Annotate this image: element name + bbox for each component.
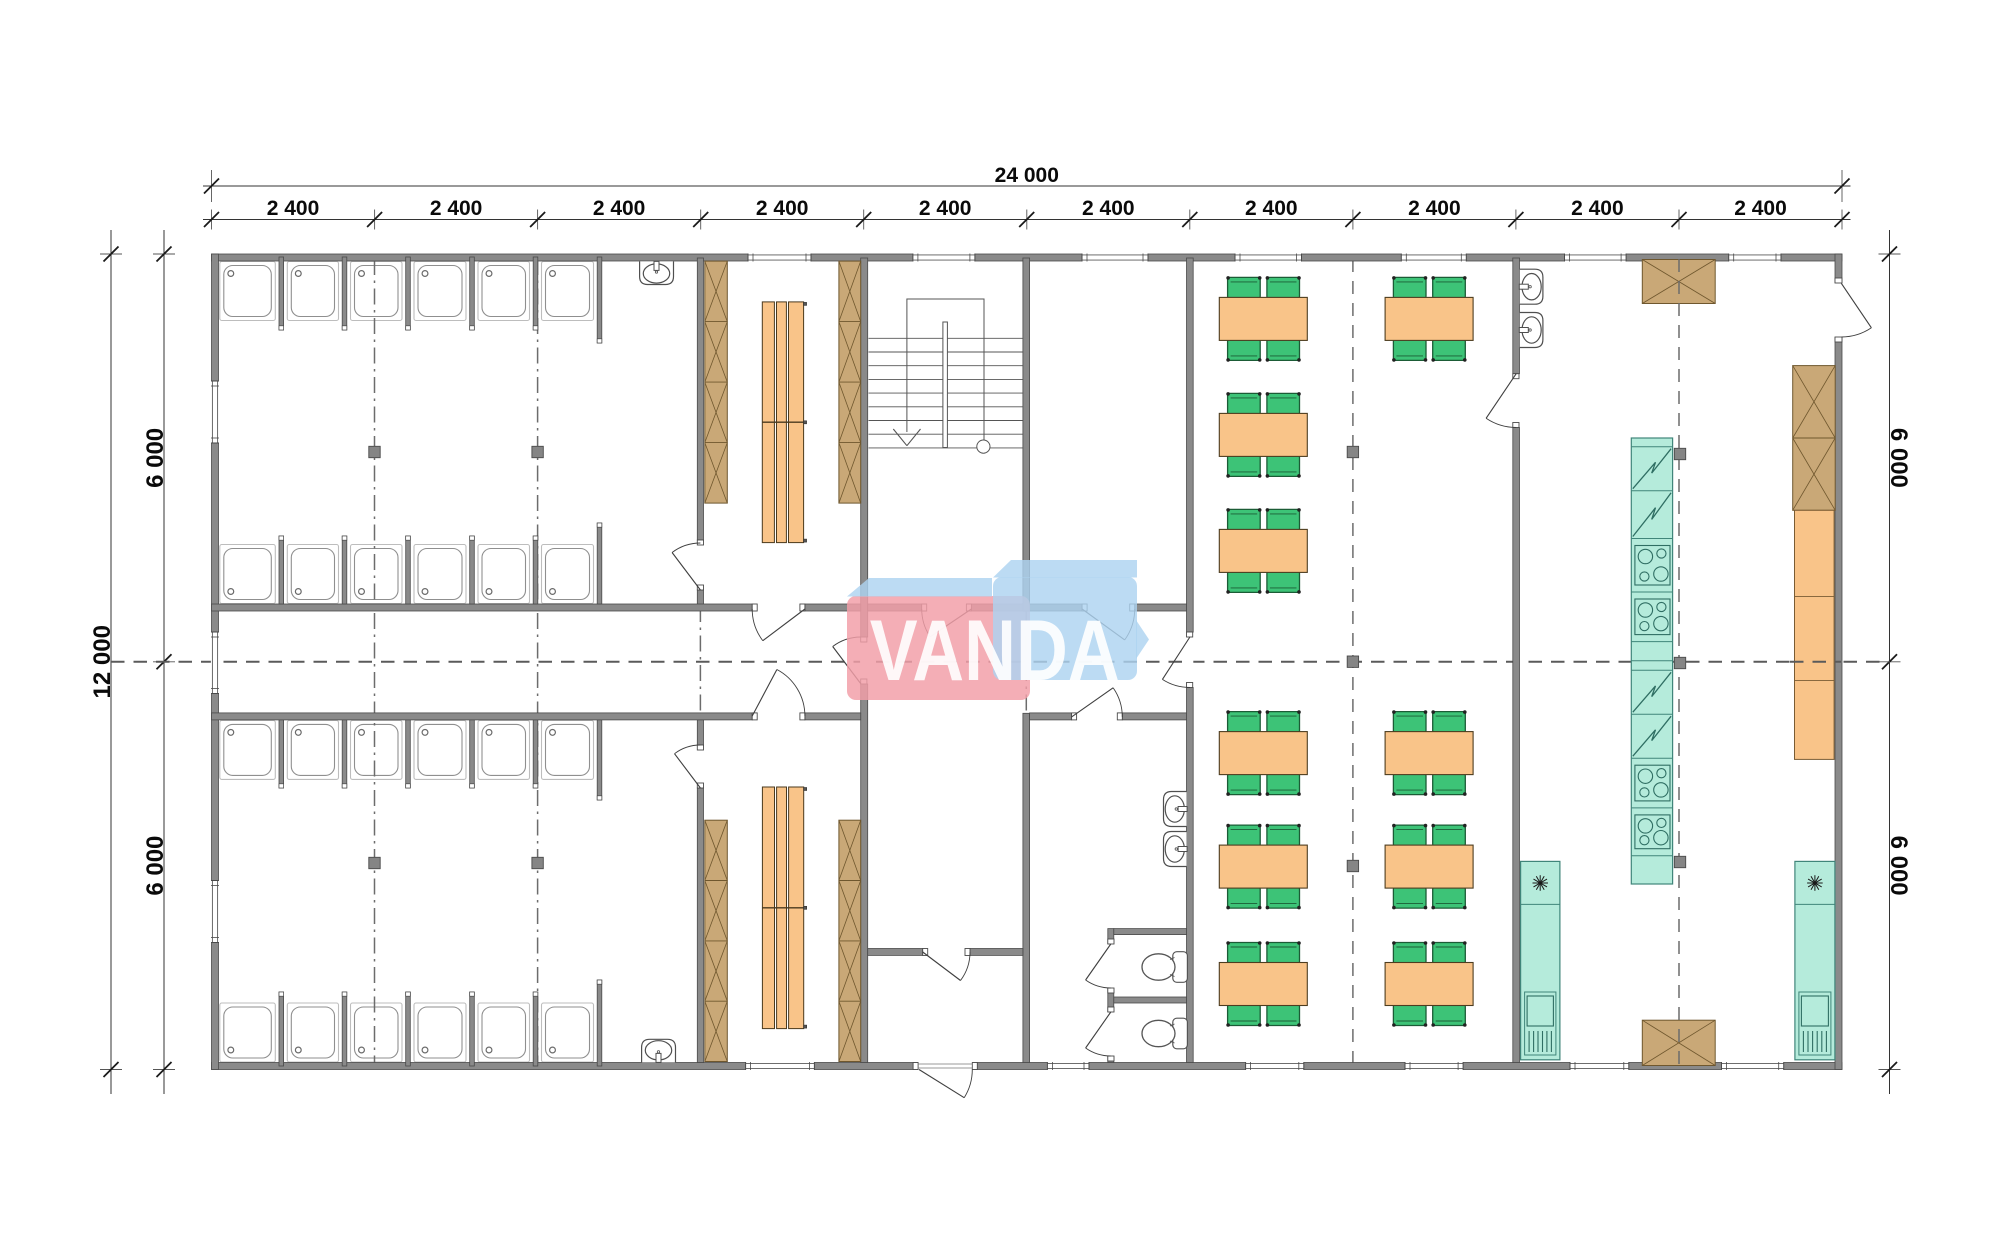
- svg-text:2 400: 2 400: [919, 197, 972, 220]
- svg-text:2 400: 2 400: [593, 197, 646, 220]
- svg-text:24 000: 24 000: [995, 164, 1059, 187]
- svg-text:2 400: 2 400: [267, 197, 320, 220]
- svg-text:6 000: 6 000: [142, 836, 169, 896]
- svg-text:2 400: 2 400: [1734, 197, 1787, 220]
- svg-text:2 400: 2 400: [1245, 197, 1298, 220]
- svg-text:2 400: 2 400: [756, 197, 809, 220]
- svg-text:6 000: 6 000: [142, 428, 169, 488]
- svg-text:6 000: 6 000: [1885, 428, 1912, 488]
- svg-text:VANDA: VANDA: [870, 603, 1120, 699]
- svg-text:2 400: 2 400: [1082, 197, 1135, 220]
- svg-text:2 400: 2 400: [1408, 197, 1461, 220]
- svg-text:6 000: 6 000: [1885, 836, 1912, 896]
- svg-text:2 400: 2 400: [430, 197, 483, 220]
- svg-text:2 400: 2 400: [1571, 197, 1624, 220]
